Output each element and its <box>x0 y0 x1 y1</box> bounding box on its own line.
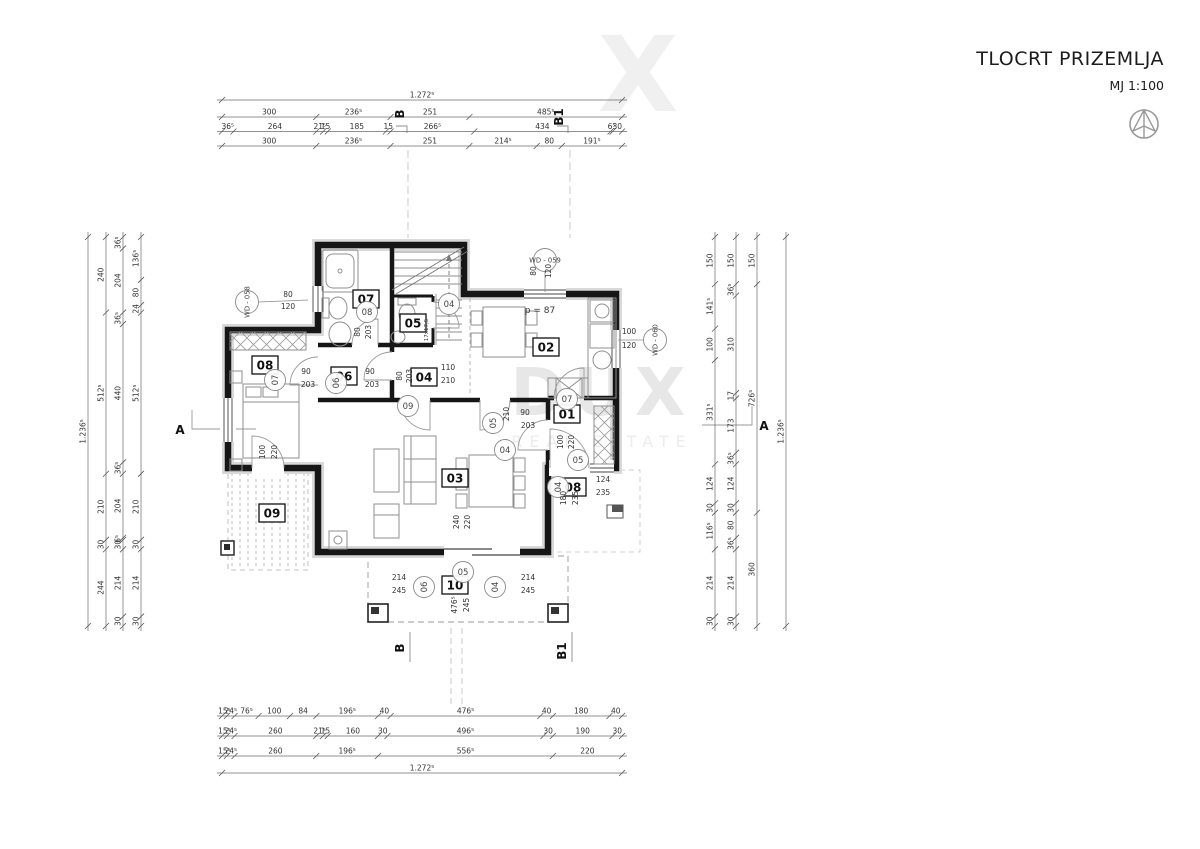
dim-line-bottom-2: 15⁵24⁵260196⁵556⁵220 <box>217 747 627 760</box>
dim-label: 80 <box>132 288 141 298</box>
dim-note: 124 <box>596 475 611 484</box>
dim-label: 1.272⁵ <box>410 764 434 773</box>
door-marker-06: 06 <box>414 577 435 598</box>
dim-label: 360 <box>748 562 757 577</box>
dim-label: 260 <box>268 727 283 736</box>
dim-label: 190 <box>576 727 591 736</box>
dim-label: 196⁵ <box>339 707 356 716</box>
dim-note: 210 <box>502 407 511 422</box>
section-lines <box>192 126 752 706</box>
dim-label: 40 <box>380 707 390 716</box>
dim-label: 496⁵ <box>457 727 474 736</box>
dim-label: 36⁵ <box>114 462 123 475</box>
dim-label: 214 <box>114 576 123 591</box>
dim-label: 36⁵ <box>114 236 123 249</box>
dim-label: 124 <box>706 476 715 491</box>
svg-text:04: 04 <box>500 446 511 456</box>
dim-label: 300 <box>262 137 277 146</box>
dim-label: 30 <box>613 122 623 131</box>
dim-line-bottom-1: 15⁵24⁵26021⁵1516030496⁵3019030 <box>217 727 627 740</box>
dim-label: 80 <box>545 137 555 146</box>
dim-label: 310 <box>727 337 736 352</box>
dim-label: 173 <box>727 418 736 433</box>
dim-label: 36⁵ <box>727 284 736 297</box>
dim-label: 214 <box>727 576 736 591</box>
svg-text:06: 06 <box>332 378 342 389</box>
dim-label: 40 <box>611 707 621 716</box>
text-note: 17x17,5 <box>424 318 430 341</box>
dim-note: 80 <box>395 371 404 381</box>
door-marker-04: 04 <box>485 577 506 598</box>
section-marker-A: A <box>759 419 769 433</box>
dim-label: 100 <box>706 337 715 352</box>
dim-label: 30 <box>132 616 141 626</box>
dim-label: 251 <box>423 108 438 117</box>
dim-note: 245 <box>392 586 407 595</box>
dim-label: 36⁵ <box>727 452 736 465</box>
svg-text:04: 04 <box>554 482 564 493</box>
dim-label: 512⁵ <box>97 384 106 401</box>
section-marker-B: B <box>393 643 407 652</box>
svg-text:08: 08 <box>362 308 373 318</box>
dim-label: 434 <box>535 122 550 131</box>
dim-note: 245 <box>462 598 471 613</box>
dim-note: 110 <box>441 363 456 372</box>
floor-plan-page: TLOCRT PRIZEMLJA MJ 1:100 X DUX REAL EST… <box>0 0 1200 849</box>
dim-label: 556⁵ <box>457 747 474 756</box>
door-marker-07: 07 <box>557 389 578 410</box>
svg-text:07: 07 <box>562 395 573 405</box>
dim-label: 24⁵ <box>224 707 237 716</box>
dim-note: 120 <box>544 264 553 279</box>
dim-label: 30 <box>114 540 123 550</box>
dim-label: 150 <box>706 253 715 268</box>
dim-note: 235 <box>571 491 580 506</box>
dim-note: 80 <box>529 266 538 276</box>
dim-label: 191⁵ <box>583 137 600 146</box>
dim-label: 80 <box>727 520 736 530</box>
room-label-04: 04 <box>411 368 437 386</box>
dim-note: 476⁵ <box>450 596 459 613</box>
dim-label: 440 <box>114 386 123 401</box>
door-marker-05: 05 <box>483 413 504 434</box>
svg-text:07: 07 <box>271 375 281 386</box>
dim-label: 30 <box>727 503 736 513</box>
dim-line-right-2: 150726⁵360 <box>748 232 761 631</box>
dim-label: 1.236⁵ <box>79 419 88 443</box>
dim-label: 30 <box>727 616 736 626</box>
dim-label: 196⁵ <box>338 747 355 756</box>
dim-label: 512⁵ <box>132 385 141 402</box>
dim-label: 15 <box>321 122 331 131</box>
section-marker-B1: B1 <box>555 642 569 660</box>
dim-label: 185 <box>350 122 365 131</box>
dim-label: 214 <box>706 576 715 591</box>
dim-label: 30 <box>378 727 388 736</box>
dim-label: 236⁵ <box>345 137 362 146</box>
dim-label: 214 <box>132 576 141 591</box>
dim-label: 36⁵ <box>221 122 234 131</box>
svg-text:05: 05 <box>573 456 584 466</box>
door-marker-05: 05 <box>568 450 589 471</box>
svg-text:02: 02 <box>538 341 555 355</box>
dim-note: 100 <box>556 435 565 450</box>
dim-note: 240 <box>452 515 461 530</box>
dim-label: 150 <box>727 253 736 268</box>
dim-label: 240 <box>97 267 106 282</box>
svg-text:04: 04 <box>444 300 455 310</box>
dim-note: 80 <box>353 327 362 337</box>
dim-note: 203 <box>405 369 414 384</box>
door-marker-04: 04 <box>495 440 516 461</box>
dim-label: 141⁵ <box>706 298 715 315</box>
dim-label: 15 <box>383 122 393 131</box>
dim-line-right-3: 1.236⁵ <box>777 232 790 631</box>
dimension-lines: 1.272⁵300236⁵251485⁵36⁵26421⁵1518515266⁵… <box>79 91 790 777</box>
door-marker-05: 05 <box>453 562 474 583</box>
window-marker: WD - 058 <box>236 286 309 318</box>
furniture-lounge <box>329 436 436 549</box>
dim-note: 245 <box>521 586 536 595</box>
dim-label: 17 <box>727 391 736 401</box>
door-marker-08: 08 <box>357 302 378 323</box>
dim-label: 30 <box>543 727 553 736</box>
dim-label: 30 <box>706 503 715 513</box>
dim-label: 220 <box>580 747 595 756</box>
dim-label: 76⁵ <box>240 707 253 716</box>
dim-note: 120 <box>281 302 296 311</box>
dim-label: 36⁵ <box>114 312 123 325</box>
dim-label: 266⁵ <box>424 122 441 131</box>
room-label-05: 05 <box>400 314 426 332</box>
dim-note: 180 <box>559 491 568 506</box>
text-note: p = 87 <box>525 306 555 316</box>
dim-label: 30 <box>97 540 106 550</box>
svg-text:09: 09 <box>264 507 281 521</box>
dim-label: 180 <box>574 707 589 716</box>
dim-note: 90 <box>520 408 530 417</box>
dim-note: 120 <box>622 341 637 350</box>
dim-label: 40 <box>542 707 552 716</box>
dim-note: 235 <box>596 488 611 497</box>
section-marker-A: A <box>175 423 185 437</box>
dim-note: 220 <box>270 445 279 460</box>
dim-label: 84 <box>298 707 308 716</box>
dim-label: 30 <box>706 616 715 626</box>
dim-line-right-1: 15036⁵3101717336⁵124308036⁵21430 <box>727 232 740 631</box>
svg-text:05: 05 <box>458 568 469 578</box>
svg-text:09: 09 <box>403 402 414 412</box>
dim-label: 251 <box>423 137 438 146</box>
dim-label: 136⁵ <box>132 250 141 267</box>
dim-line-bottom-3: 1.272⁵ <box>217 764 627 777</box>
dim-label: 331⁵ <box>706 404 715 421</box>
dim-note: 203 <box>301 380 316 389</box>
svg-text:04: 04 <box>491 582 501 593</box>
svg-text:05: 05 <box>405 317 422 331</box>
dim-note: 203 <box>364 325 373 340</box>
svg-text:06: 06 <box>420 582 430 593</box>
dim-label: 24⁵ <box>224 727 237 736</box>
door-marker-07: 07 <box>265 370 286 391</box>
dim-label: 116⁵ <box>706 522 715 539</box>
dim-line-left-1: 240512⁵21030244 <box>97 232 110 631</box>
dim-note: 214 <box>392 573 407 582</box>
dim-note: 210 <box>441 376 456 385</box>
room-label-02: 02 <box>533 338 559 356</box>
dim-note: 90 <box>301 367 311 376</box>
svg-text:WD - 058: WD - 058 <box>243 286 251 318</box>
dim-label: 210 <box>132 499 141 514</box>
svg-text:04: 04 <box>416 371 433 385</box>
dim-label: 726⁵ <box>748 390 757 407</box>
dim-line-top-3: 300236⁵251214⁵80191⁵ <box>217 137 627 150</box>
dim-label: 160 <box>346 727 361 736</box>
dim-line-left-3: 136⁵8024512⁵2103021430 <box>132 232 145 631</box>
dim-label: 30 <box>613 727 623 736</box>
dim-note: 214 <box>521 573 536 582</box>
dim-label: 24⁵ <box>224 747 237 756</box>
door-marker-06: 06 <box>326 373 347 394</box>
dim-label: 204 <box>114 273 123 288</box>
section-marker-B: B <box>393 109 407 118</box>
dim-label: 124 <box>727 476 736 491</box>
dim-label: 30 <box>132 540 141 550</box>
dim-line-left-2: 36⁵20436⁵44036⁵2046⁵3021430 <box>114 232 127 631</box>
dim-line-bottom-0: 15⁵24⁵76⁵10084196⁵40476⁵4018040 <box>217 707 627 720</box>
dim-label: 100 <box>267 707 282 716</box>
dim-label: 210 <box>97 499 106 514</box>
dim-label: 300 <box>262 108 277 117</box>
dim-label: 1.272⁵ <box>410 91 434 100</box>
dim-note: 203 <box>365 380 380 389</box>
dim-label: 236⁵ <box>345 108 362 117</box>
dim-note: 203 <box>521 421 536 430</box>
svg-text:WD - 059: WD - 059 <box>529 256 561 264</box>
room-label-03: 03 <box>442 469 468 487</box>
dim-label: 150 <box>748 253 757 268</box>
dim-label: 15 <box>321 727 331 736</box>
dim-label: 260 <box>268 747 283 756</box>
dim-note: 100 <box>258 445 267 460</box>
dim-label: 214⁵ <box>494 137 511 146</box>
svg-text:03: 03 <box>447 472 464 486</box>
dim-line-top-0: 1.272⁵ <box>217 91 627 104</box>
dim-line-right-0: 150141⁵100331⁵12430116⁵21430 <box>706 232 719 631</box>
dim-label: 244 <box>97 580 106 595</box>
dim-label: 1.236⁵ <box>777 419 786 443</box>
door-marker-04: 04 <box>439 294 460 315</box>
dim-note: 100 <box>622 327 637 336</box>
dim-note: 220 <box>463 515 472 530</box>
room-label-09: 09 <box>259 504 285 522</box>
svg-text:WD - 060: WD - 060 <box>651 324 659 356</box>
floor-plan-drawing: 1.272⁵300236⁵251485⁵36⁵26421⁵1518515266⁵… <box>0 0 1200 849</box>
svg-text:05: 05 <box>489 418 499 429</box>
dim-line-left-0: 1.236⁵ <box>79 232 92 631</box>
dim-note: 90 <box>365 367 375 376</box>
dim-label: 24 <box>132 304 141 314</box>
door-marker-09: 09 <box>398 396 419 417</box>
dim-label: 30 <box>114 616 123 626</box>
dim-note: 80 <box>283 290 293 299</box>
section-marker-B1: B1 <box>552 108 566 126</box>
dim-label: 204 <box>114 498 123 513</box>
dim-label: 476⁵ <box>457 707 474 716</box>
dim-note: 220 <box>567 435 576 450</box>
dim-label: 264 <box>268 122 283 131</box>
dim-label: 36⁵ <box>727 537 736 550</box>
